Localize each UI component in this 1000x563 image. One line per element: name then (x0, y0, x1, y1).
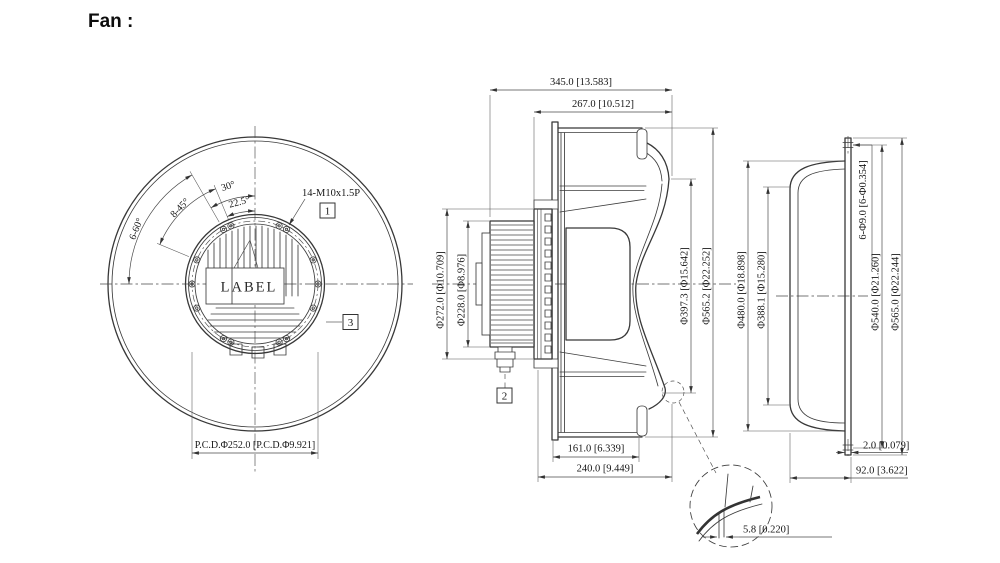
dim-inlet-dia: Φ397.3 [Φ15.642] (662, 179, 696, 393)
balloon-3-text: 3 (348, 317, 354, 329)
dim-opening-dia-text: Φ480.0 [Φ18.898] (737, 251, 748, 328)
dim-wheel-depth-text: 161.0 [6.339] (568, 444, 625, 455)
angular-dimensions: 22.5° 30° 8-45° 6-60° (127, 171, 255, 284)
dim-angle-8-45: 8-45° (168, 196, 191, 220)
inlet-lip-top (637, 129, 647, 159)
motor-end-boss (476, 263, 482, 305)
dim-lip-thickness: 5.8 [0.220] (703, 525, 832, 538)
name-plate: LABEL (206, 240, 284, 304)
dim-angle-22-5: 22.5° (228, 194, 252, 210)
dim-inlet-dia-text: Φ397.3 [Φ15.642] (680, 247, 691, 324)
dim-motor-flange-dia-text: Φ272.0 [Φ10.709] (436, 251, 447, 328)
mounting-plate (552, 122, 558, 440)
impeller-section (558, 128, 684, 437)
thread-callout: 14-M10x1.5P 1 (289, 188, 360, 225)
dim-impeller-dia-text: Φ565.2 [Φ22.252] (702, 247, 713, 324)
drawing-sheet: Fan : LABEL (0, 0, 1000, 563)
balloon-3: 3 (326, 315, 358, 330)
drawing-canvas: Fan : LABEL (0, 0, 1000, 563)
dim-wheel-depth: 161.0 [6.339] (553, 438, 639, 462)
dim-pcd-text: P.C.D.Φ252.0 [P.C.D.Φ9.921] (195, 440, 315, 451)
balloon-2: 2 (497, 374, 512, 403)
balloon-2-text: 2 (502, 391, 508, 403)
motor-section (476, 200, 558, 372)
detail-leader (679, 402, 716, 473)
side-view: 2 345.0 [13.583] 267.0 [10.512] Φ272.0 [… (432, 77, 736, 482)
dim-bolt-holes: 6-Φ9.0 [6-Φ0.354] (853, 145, 872, 268)
inlet-lip-bottom (637, 406, 647, 436)
dim-housing-depth-text: 267.0 [10.512] (572, 99, 634, 110)
dim-motor-body-dia-text: Φ228.0 [Φ8.976] (457, 254, 468, 326)
thread-callout-text: 14-M10x1.5P (302, 188, 360, 199)
motor-end-cap (482, 233, 490, 335)
dim-plate-thickness-text: 2.0 [0.079] (863, 441, 909, 452)
cable-gland (495, 347, 515, 372)
dim-outer-dia-text: Φ565.0 [Φ22.244] (891, 253, 902, 330)
shroud-profile-outer (636, 179, 669, 409)
hub-section (566, 228, 630, 340)
detail-view: 5.8 [0.220] (679, 402, 832, 547)
inlet-bell-inner (645, 152, 662, 181)
balloon-1-text: 1 (325, 206, 331, 218)
inlet-bell-outer (647, 143, 669, 179)
name-plate-text: LABEL (221, 280, 278, 296)
wall-plate-flange (845, 138, 851, 455)
dim-throat-dia-text: Φ388.1 [Φ15.280] (757, 251, 768, 328)
dim-bolt-circle-dia-text: Φ540.0 [Φ21.260] (871, 253, 882, 330)
dim-assembly-depth-text: 240.0 [9.449] (577, 464, 634, 475)
dim-plate-thickness: 2.0 [0.079] (836, 441, 909, 453)
dim-ring-depth-text: 92.0 [3.622] (856, 466, 908, 477)
shroud-profile-inner (633, 184, 662, 386)
dim-angle-30: 30° (220, 179, 237, 194)
dim-overall-depth-text: 345.0 [13.583] (550, 77, 612, 88)
motor-flange-ring (534, 209, 552, 359)
dim-bolt-holes-text: 6-Φ9.0 [6-Φ0.354] (858, 160, 869, 239)
inlet-ring-view: 6-Φ9.0 [6-Φ0.354] Φ480.0 [Φ18.898] Φ388.… (737, 136, 910, 483)
dim-lip-thickness-text: 5.8 [0.220] (743, 525, 789, 536)
page-title: Fan : (88, 11, 133, 32)
front-view: LABEL 22.5° 30° 8-45° 6-60° 14-M10x1.5P … (100, 126, 413, 472)
dim-angle-6-60: 6-60° (127, 217, 146, 242)
